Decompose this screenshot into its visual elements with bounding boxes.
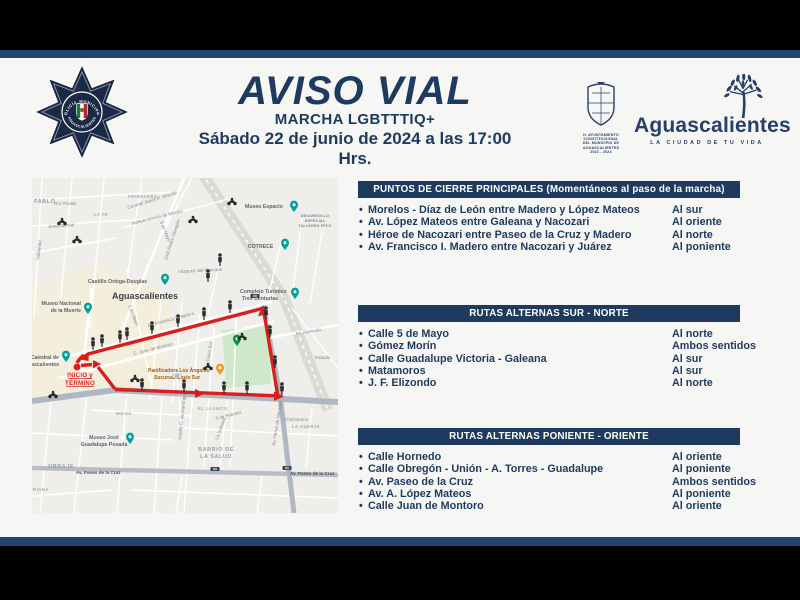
- direction: Al oriente: [672, 451, 722, 463]
- route-map: PABLO PRIMAVERA LA FE OBRAJE BARRIO DE L…: [32, 178, 338, 513]
- poi-label-cotrece: COTRECE: [248, 244, 274, 250]
- area-label-barrio-2: LA SALUD: [200, 454, 232, 460]
- poi-label-panificadora-1: Panificadora Los Ángeles: [148, 367, 209, 374]
- direction: Al norte: [672, 229, 713, 241]
- title-block: AVISO VIAL MARCHA LGBTTTIQ+ Sábado 22 de…: [195, 72, 515, 169]
- street-label: Del Sol: [116, 411, 131, 416]
- street-label: Vázquez del Mercado: [178, 267, 223, 274]
- closure-row: •Av. López Mateos entre Galeana y Nacoza…: [358, 216, 740, 228]
- street-label: Jesús Bernal: [48, 222, 75, 229]
- map-pin-icon: [291, 288, 299, 299]
- route-row: •Calle Juan de MontoroAl oriente: [358, 500, 740, 512]
- poi-label-desarrollo-3: TALLERES FFCC: [298, 224, 332, 228]
- street-name: Calle Hornedo: [368, 451, 441, 463]
- street-label: Av. Paseo de la Cruz: [290, 471, 335, 476]
- area-label-pablo: PABLO: [34, 199, 55, 205]
- street-name: Morelos - Díaz de León entre Madero y Ló…: [368, 204, 640, 216]
- route-row: •Calle Obregón - Unión - A. Torres - Gua…: [358, 463, 740, 475]
- closure-row: •Héroe de Nacozari entre Paseo de la Cru…: [358, 229, 740, 241]
- street-label: 5 de Febrero: [215, 410, 242, 421]
- street-name: Calle Guadalupe Victoria - Galeana: [368, 353, 547, 365]
- area-label-barrio-1: BARRIO DE: [198, 447, 234, 453]
- bottom-navy-band: [0, 537, 800, 546]
- street-name: Calle 5 de Mayo: [368, 328, 449, 340]
- closure-row: •Av. Francisco I. Madero entre Nacozari …: [358, 241, 740, 253]
- section-header: PUNTOS DE CIERRE PRINCIPALES (Momentáneo…: [358, 181, 740, 198]
- poi-label-museo-espacio: Museo Espacio: [245, 204, 283, 210]
- section-header: RUTAS ALTERNAS SUR - NORTE: [358, 305, 740, 322]
- badge-center-shield: [76, 103, 88, 121]
- poi-label-museo-muerte-1: Museo Nacional: [42, 301, 82, 307]
- crest-caption-line2: DEL MUNICIPIO DE AGUASCALIENTES: [568, 141, 634, 149]
- bullet: •: [359, 353, 363, 365]
- direction: Al poniente: [672, 463, 731, 475]
- route-row: •Av. A. López MateosAl poniente: [358, 488, 740, 500]
- map-pin-icon: [216, 364, 224, 375]
- municipal-crest: H. AYUNTAMIENTO CONSTITUCIONAL DEL MUNIC…: [568, 82, 634, 154]
- street-name: Av. Francisco I. Madero entre Nacozari y…: [368, 241, 612, 253]
- bullet: •: [359, 500, 363, 512]
- bullet: •: [359, 241, 363, 253]
- route-row: •Calle Guadalupe Victoria - GaleanaAl su…: [358, 353, 740, 365]
- poi-label-posada-1: Museo José: [89, 435, 119, 441]
- map-pin-icon: [281, 239, 289, 250]
- route-row: •Av. Paseo de la CruzAmbos sentidos: [358, 476, 740, 488]
- direction: Al oriente: [672, 500, 722, 512]
- top-navy-band: [0, 50, 800, 58]
- bullet: •: [359, 204, 363, 216]
- police-badge-logo: POLICÍA MUNICIPAL AGUASCALIENTES: [30, 60, 134, 164]
- section-alt-routes-poniente-oriente: RUTAS ALTERNAS PONIENTE - ORIENTE •Calle…: [358, 428, 740, 512]
- tree-icon: [720, 74, 766, 118]
- street-name: Calle Obregón - Unión - A. Torres - Guad…: [368, 463, 603, 475]
- map-pin-icon: [161, 274, 169, 285]
- poi-label-catedral-2: Aguascalientes: [32, 362, 59, 368]
- page-title: AVISO VIAL: [195, 72, 515, 110]
- direction: Al norte: [672, 377, 713, 389]
- event-datetime: Sábado 22 de junio de 2024 a las 17:00 H…: [195, 129, 515, 169]
- direction: Al poniente: [672, 488, 731, 500]
- street-label: Río Pirules: [54, 201, 77, 206]
- area-label-obraje: OBRAJE: [48, 464, 74, 470]
- area-label-estadio: Estadio: [315, 355, 331, 360]
- bullet: •: [359, 229, 363, 241]
- poi-label-complejo-1: Complejo Turístico: [240, 289, 287, 295]
- area-label-llanito: EL LLANITO: [198, 406, 228, 411]
- poster-content: POLICÍA MUNICIPAL AGUASCALIENTES AVISO V…: [0, 58, 800, 537]
- bullet: •: [359, 340, 363, 352]
- bullet: •: [359, 476, 363, 488]
- direction: Al oriente: [672, 216, 722, 228]
- traffic-advisory-poster: { "ui": { "bullet": "•" }, "colors": { "…: [0, 0, 800, 600]
- street-name: Av. López Mateos entre Galeana y Nacozar…: [368, 216, 589, 228]
- direction: Al norte: [672, 328, 713, 340]
- street-name: Av. Paseo de la Cruz: [368, 476, 473, 488]
- direction: Al sur: [672, 353, 703, 365]
- direction: Al sur: [672, 365, 703, 377]
- section-closure-points: PUNTOS DE CIERRE PRINCIPALES (Momentáneo…: [358, 181, 740, 253]
- bullet: •: [359, 377, 363, 389]
- area-label-triana: TRIANA: [32, 487, 49, 492]
- area-label-la-fe: LA FE: [94, 212, 108, 217]
- crest-caption-line3: 2021 - 2024: [568, 150, 634, 154]
- bullet: •: [359, 488, 363, 500]
- route-row: •MatamorosAl sur: [358, 365, 740, 377]
- section-header: RUTAS ALTERNAS PONIENTE - ORIENTE: [358, 428, 740, 445]
- street-name: Héroe de Nacozari entre Paseo de la Cruz…: [368, 229, 631, 241]
- route-row: •Gómez MorínAmbos sentidos: [358, 340, 740, 352]
- street-name: Calle Juan de Montoro: [368, 500, 484, 512]
- street-name: Gómez Morín: [368, 340, 436, 352]
- direction: Ambos sentidos: [672, 340, 756, 352]
- route-row: •Calle 5 de MayoAl norte: [358, 328, 740, 340]
- poi-label-desarrollo-2: ESPECIAL: [305, 219, 326, 223]
- closure-row: •Morelos - Díaz de León entre Madero y L…: [358, 204, 740, 216]
- park-area: [222, 326, 271, 388]
- city-brand-logo: Aguascalientes LA CIUDAD DE TU VIDA: [634, 88, 780, 146]
- poi-label-desarrollo-1: DESARROLLO: [301, 214, 330, 218]
- start-label-line2: TÉRMINO: [65, 379, 95, 387]
- bullet: •: [359, 451, 363, 463]
- poi-label-catedral-1: Catedral de: [32, 355, 59, 361]
- street-name: Av. A. López Mateos: [368, 488, 471, 500]
- bullet: •: [359, 216, 363, 228]
- street-name: J. F. Elizondo: [368, 377, 436, 389]
- brand-tagline: LA CIUDAD DE TU VIDA: [634, 140, 780, 146]
- crest-caption-line1: H. AYUNTAMIENTO CONSTITUCIONAL: [568, 133, 634, 141]
- route-row: •Calle HornedoAl oriente: [358, 451, 740, 463]
- poi-label-posada-2: Guadalupe Posada: [81, 442, 128, 448]
- bullet: •: [359, 365, 363, 377]
- poi-label-museo-muerte-2: de la Muerte: [51, 308, 81, 314]
- bullet: •: [359, 328, 363, 340]
- route-row: •J. F. ElizondoAl norte: [358, 377, 740, 389]
- direction: Ambos sentidos: [672, 476, 756, 488]
- bullet: •: [359, 463, 363, 475]
- city-label: Aguascalientes: [112, 291, 178, 301]
- street-name: Matamoros: [368, 365, 426, 377]
- map-pin-icon: [290, 201, 298, 212]
- street-label: Valladolid: [35, 240, 42, 260]
- crest-shield-icon: [568, 82, 634, 128]
- street-label: Chichimeco: [284, 417, 308, 422]
- poi-label-castillo: Castillo Ortega-Douglas: [88, 279, 147, 285]
- section-alt-routes-sur-norte: RUTAS ALTERNAS SUR - NORTE •Calle 5 de M…: [358, 305, 740, 389]
- event-subtitle: MARCHA LGBTTTIQ+: [195, 111, 515, 128]
- start-label-line1: INICIO y: [67, 372, 93, 379]
- direction: Al sur: [672, 204, 703, 216]
- street-label: Av. Paseo de la Cruz: [76, 470, 121, 475]
- area-label-huerta: LA HUERTA: [292, 424, 320, 429]
- route-start-dot: [74, 364, 81, 371]
- direction: Al poniente: [672, 241, 731, 253]
- poi-label-complejo-2: Tres Centurias: [242, 296, 278, 302]
